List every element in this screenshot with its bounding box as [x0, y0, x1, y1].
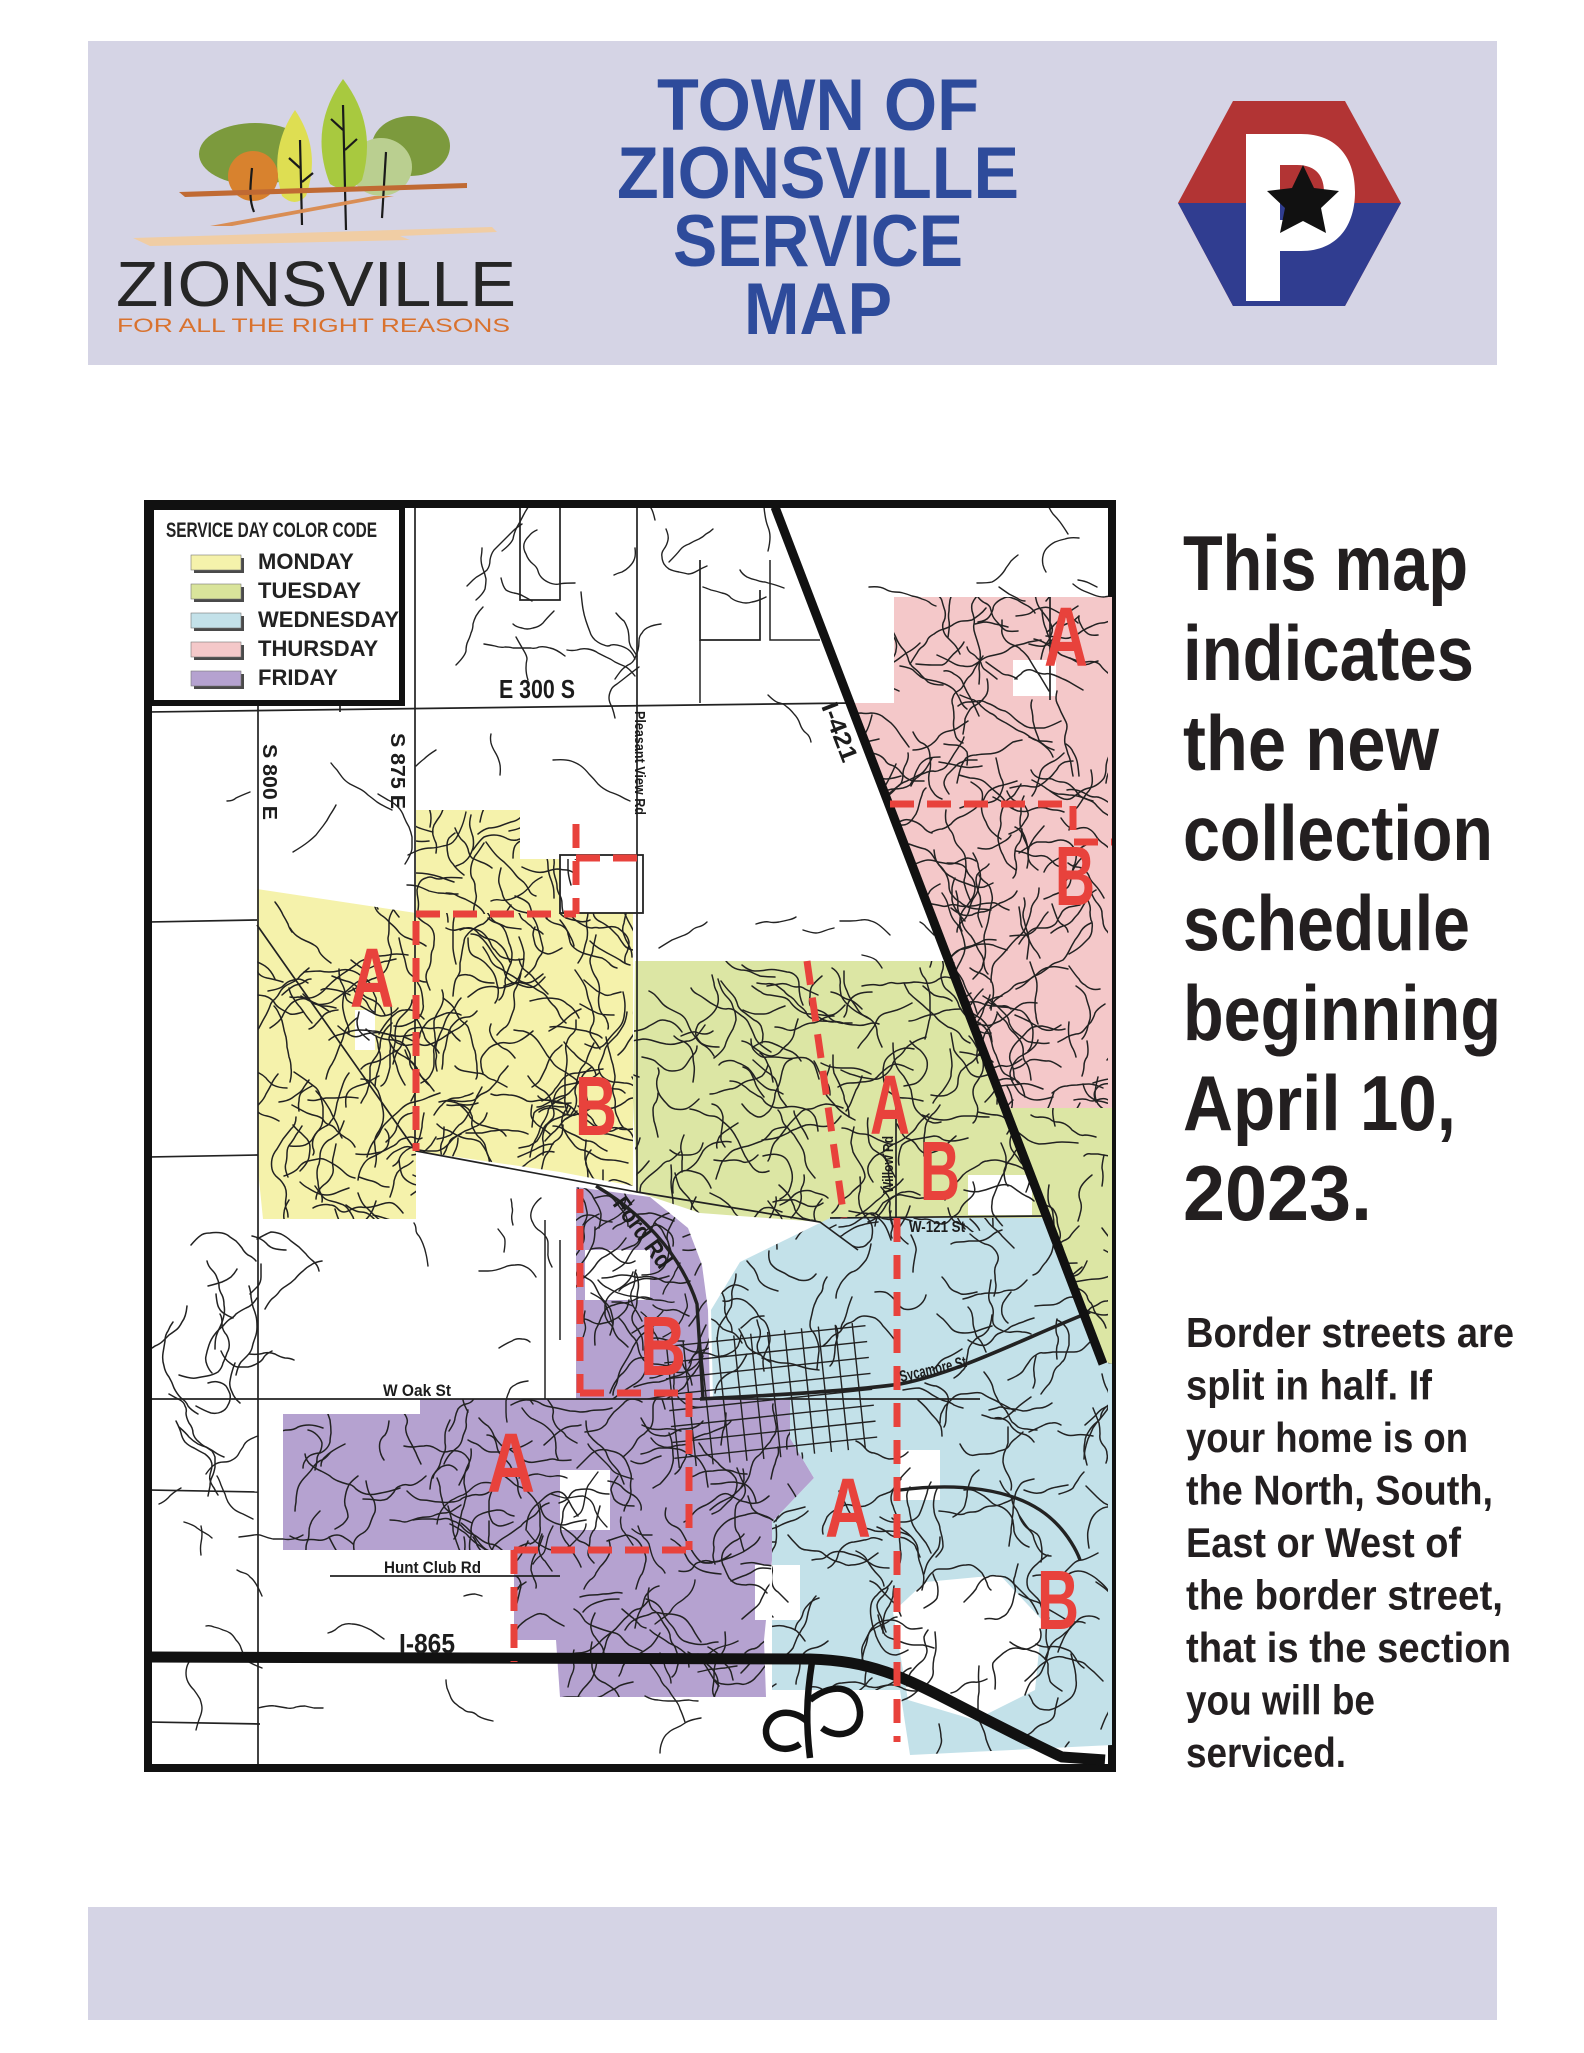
- svg-text:Border streets are: Border streets are: [1186, 1309, 1514, 1356]
- svg-text:S 875 E: S 875 E: [386, 733, 408, 809]
- svg-text:MONDAY: MONDAY: [258, 549, 354, 574]
- svg-text:FRIDAY: FRIDAY: [258, 665, 338, 690]
- svg-text:B: B: [575, 1059, 617, 1153]
- svg-text:split in half. If: split in half. If: [1186, 1362, 1433, 1409]
- svg-text:S 800 E: S 800 E: [258, 744, 280, 820]
- svg-text:2023.: 2023.: [1183, 1149, 1372, 1237]
- svg-text:schedule: schedule: [1183, 879, 1470, 967]
- svg-text:TUESDAY: TUESDAY: [258, 578, 361, 603]
- svg-text:E 300 S: E 300 S: [499, 674, 575, 704]
- svg-text:FOR ALL THE RIGHT REASONS: FOR ALL THE RIGHT REASONS: [117, 316, 510, 337]
- svg-text:WEDNESDAY: WEDNESDAY: [258, 607, 399, 632]
- svg-text:your home is on: your home is on: [1186, 1414, 1468, 1461]
- svg-text:THURSDAY: THURSDAY: [258, 636, 379, 661]
- svg-text:A: A: [350, 931, 394, 1025]
- svg-text:A: A: [870, 1058, 910, 1152]
- svg-text:ZIONSVILLE: ZIONSVILLE: [116, 248, 516, 320]
- svg-text:Hunt Club Rd: Hunt Club Rd: [384, 1558, 481, 1577]
- svg-text:that is the section: that is the section: [1186, 1624, 1511, 1671]
- svg-text:SERVICE DAY COLOR CODE: SERVICE DAY COLOR CODE: [166, 519, 377, 542]
- svg-text:Pleasant View Rd: Pleasant View Rd: [631, 711, 648, 815]
- svg-text:B: B: [1037, 1553, 1079, 1647]
- svg-text:A: A: [487, 1416, 535, 1510]
- svg-text:B: B: [920, 1124, 960, 1218]
- svg-text:April 10,: April 10,: [1183, 1059, 1456, 1147]
- svg-text:B: B: [1055, 829, 1095, 923]
- svg-text:the North, South,: the North, South,: [1186, 1467, 1493, 1514]
- svg-text:I-865: I-865: [399, 1628, 455, 1659]
- svg-text:W Oak St: W Oak St: [383, 1381, 451, 1400]
- svg-text:collection: collection: [1183, 789, 1493, 877]
- svg-text:you will be: you will be: [1186, 1677, 1375, 1724]
- svg-text:indicates: indicates: [1183, 609, 1474, 697]
- svg-text:A: A: [825, 1461, 871, 1555]
- svg-text:MAP: MAP: [744, 269, 892, 350]
- svg-text:A: A: [1044, 590, 1088, 684]
- svg-text:W-121 St: W-121 St: [909, 1219, 966, 1236]
- svg-text:This map: This map: [1183, 519, 1468, 607]
- svg-text:the border street,: the border street,: [1186, 1572, 1503, 1619]
- svg-text:beginning: beginning: [1183, 969, 1501, 1057]
- svg-text:the new: the new: [1183, 699, 1439, 787]
- svg-text:East or West of: East or West of: [1186, 1519, 1462, 1566]
- svg-text:B: B: [640, 1299, 686, 1393]
- svg-text:serviced.: serviced.: [1186, 1729, 1346, 1776]
